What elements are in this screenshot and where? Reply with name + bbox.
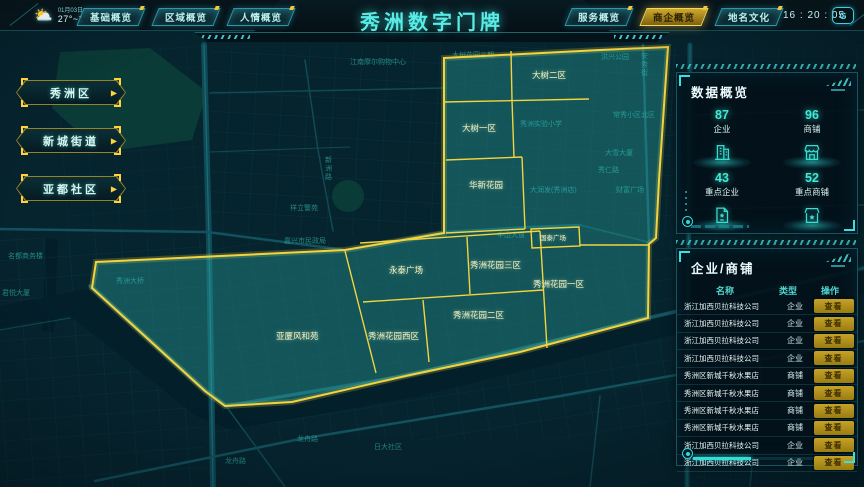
stat-card-3: 52重点商铺: [767, 171, 857, 234]
chevron-right-icon: ▶: [111, 184, 117, 193]
company-type: 企业: [780, 301, 810, 312]
title-backplate: [252, 0, 612, 34]
corner-mark: [114, 148, 121, 155]
company-name: 浙江加西贝拉科技公司: [677, 318, 780, 329]
corner-mark: [21, 100, 28, 107]
action-cell: 查看: [810, 369, 857, 383]
map-base-label: 君悦大厦: [2, 288, 30, 297]
table-row: 浙江加西贝拉科技公司企业查看: [677, 315, 857, 332]
stat-label: 商铺: [767, 123, 857, 135]
stat-label: 重点企业: [677, 186, 767, 198]
company-name: 秀洲区新城千秋水果店: [677, 388, 780, 399]
map-region-label: 大树二区: [532, 70, 567, 80]
view-button[interactable]: 查看: [814, 351, 854, 365]
corner-mark: [114, 196, 121, 203]
company-type: 企业: [780, 335, 810, 346]
map-base-label: 名都商务楼: [8, 251, 43, 260]
company-name: 秀洲区新城千秋水果店: [677, 405, 780, 416]
company-name: 浙江加西贝拉科技公司: [677, 301, 780, 312]
map-region-label: 秀洲花园西区: [368, 331, 420, 341]
stats-grid: 87企业96商铺43重点企业52重点商铺: [677, 106, 857, 234]
hatch-decor: [614, 35, 668, 39]
stat-label: 重点商铺: [767, 186, 857, 198]
stat-label: 企业: [677, 123, 767, 135]
tab-label: 人情概览: [240, 10, 282, 24]
corner-mark: [21, 148, 28, 155]
company-name: 浙江加西贝拉科技公司: [677, 353, 780, 364]
tab-label: 区域概览: [165, 10, 207, 24]
map-region-label: 秀洲花园一区: [533, 279, 585, 289]
target-icon: [682, 448, 693, 459]
chevron-right-icon: ▶: [111, 136, 117, 145]
table-row: 浙江加西贝拉科技公司企业查看: [677, 350, 857, 367]
action-cell: 查看: [810, 438, 857, 452]
action-cell: 查看: [810, 404, 857, 418]
panel-title: 企业/商铺: [677, 249, 857, 282]
map-region-label: 秀洲花园二区: [453, 310, 505, 320]
map-base-label: 龙舟路: [297, 434, 318, 443]
tab-label: 地名文化: [728, 10, 770, 24]
button-label: 秀洲区: [16, 80, 126, 105]
company-type: 企业: [780, 440, 810, 451]
company-name: 浙江加西贝拉科技公司: [677, 335, 780, 346]
header-lower-bar: [182, 32, 682, 42]
corner-mark: [114, 100, 121, 107]
map-base-label: 祥立警苑: [290, 203, 318, 212]
tab-people-overview[interactable]: 人情概览: [230, 8, 292, 26]
table-row: 秀洲区新城千秋水果店商铺查看: [677, 402, 857, 419]
column-header-name: 名称: [677, 284, 773, 297]
tab-region-overview[interactable]: 区域概览: [155, 8, 217, 26]
stat-value: 96: [767, 108, 857, 122]
stat-card-2: 43重点企业: [677, 171, 767, 234]
view-button[interactable]: 查看: [814, 386, 854, 400]
nav-xincheng-street[interactable]: 新城街道▶: [16, 128, 126, 153]
panel-top-hatch: [676, 64, 856, 69]
table-row: 秀洲区新城千秋水果店商铺查看: [677, 368, 857, 385]
company-type: 企业: [780, 353, 810, 364]
table-row: 浙江加西贝拉科技公司企业查看: [677, 437, 857, 454]
company-type: 商铺: [780, 422, 810, 433]
action-cell: 查看: [810, 351, 857, 365]
table-header: 名称类型操作: [677, 282, 857, 298]
view-button[interactable]: 查看: [814, 421, 854, 435]
company-name: 秀洲区新城千秋水果店: [677, 370, 780, 381]
action-cell: 查看: [810, 299, 857, 313]
stat-card-0: 87企业: [677, 108, 767, 171]
corner-mark: [21, 78, 28, 85]
corner-mark: [21, 126, 28, 133]
fullscreen-icon: G: [839, 11, 846, 21]
view-button[interactable]: 查看: [814, 438, 854, 452]
horizontal-scrollbar[interactable]: [693, 457, 813, 460]
company-type: 商铺: [780, 405, 810, 416]
map-region-label: 大树一区: [462, 123, 497, 133]
key-shop-icon: [767, 200, 857, 226]
company-name: 秀洲区新城千秋水果店: [677, 422, 780, 433]
map-base-label: 龙舟路: [225, 456, 246, 465]
table-body: 浙江加西贝拉科技公司企业查看浙江加西贝拉科技公司企业查看浙江加西贝拉科技公司企业…: [677, 298, 857, 472]
action-cell: 查看: [810, 421, 857, 435]
table-row: 秀洲区新城千秋水果店商铺查看: [677, 385, 857, 402]
tab-service-overview[interactable]: 服务概览: [568, 8, 630, 26]
scrollbar-thumb[interactable]: [693, 457, 751, 460]
corner-mark: [21, 196, 28, 203]
map-region-label: 华新花园: [469, 180, 503, 190]
map-region-label: 国泰广场: [540, 233, 567, 242]
corner-decor: [844, 452, 855, 463]
cloud-sun-icon: ⛅: [34, 6, 53, 24]
view-button[interactable]: 查看: [814, 369, 854, 383]
company-type: 企业: [780, 318, 810, 329]
nav-xiuzhou-district[interactable]: 秀洲区▶: [16, 80, 126, 105]
tabs-left: 基础概览区域概览人情概览: [80, 8, 305, 26]
nav-yadu-community[interactable]: 亚都社区▶: [16, 176, 126, 201]
action-cell: 查看: [810, 334, 857, 348]
column-header-action: 操作: [803, 284, 857, 297]
tab-label: 商企概览: [653, 10, 695, 24]
stat-value: 52: [767, 171, 857, 185]
company-name: 浙江加西贝拉科技公司: [677, 440, 780, 451]
corner-mark: [114, 126, 121, 133]
view-button[interactable]: 查看: [814, 334, 854, 348]
corner-mark: [114, 78, 121, 85]
panel-top-hatch: [676, 240, 856, 245]
map-base-label: 江南摩尔购物中心: [350, 57, 406, 66]
map-base-label: 嘉兴市民政局: [284, 236, 326, 245]
shop-icon: [767, 137, 857, 163]
tab-business-overview[interactable]: 商企概览: [643, 8, 705, 26]
table-row: 浙江加西贝拉科技公司企业查看: [677, 298, 857, 315]
map-region-label: 亚厦风和苑: [276, 331, 319, 341]
map-base-label: 日大社区: [374, 442, 402, 451]
action-cell: 查看: [810, 317, 857, 331]
hatch-decor: [196, 35, 250, 39]
key-enterprise-icon: [677, 200, 767, 226]
tab-placename-culture[interactable]: 地名文化: [718, 8, 780, 26]
corner-mark: [114, 174, 121, 181]
data-overview-panel: 数据概览 87企业96商铺43重点企业52重点商铺: [676, 72, 858, 234]
button-label: 新城街道: [16, 128, 126, 153]
view-button[interactable]: 查看: [814, 299, 854, 313]
tab-label: 服务概览: [578, 10, 620, 24]
stat-value: 43: [677, 171, 767, 185]
tab-label: 基础概览: [90, 10, 132, 24]
company-type: 商铺: [780, 388, 810, 399]
fullscreen-button[interactable]: G: [832, 7, 854, 24]
table-row: 浙江加西贝拉科技公司企业查看: [677, 333, 857, 350]
tabs-right: 服务概览商企概览地名文化: [568, 8, 793, 26]
view-button[interactable]: 查看: [814, 317, 854, 331]
company-type: 商铺: [780, 370, 810, 381]
stat-card-1: 96商铺: [767, 108, 857, 171]
app-root: 江南摩尔购物中心大树花园三期洪兴公园安秀街常秀小区北区秀洲实验小学大雪大厦秀仁路…: [0, 0, 864, 487]
corner-mark: [21, 174, 28, 181]
column-header-type: 类型: [773, 284, 803, 297]
tab-basic-overview[interactable]: 基础概览: [80, 8, 142, 26]
business-panel: 企业/商铺 名称类型操作 浙江加西贝拉科技公司企业查看浙江加西贝拉科技公司企业查…: [676, 248, 858, 466]
building-icon: [677, 137, 767, 163]
stat-value: 87: [677, 108, 767, 122]
action-cell: 查看: [810, 386, 857, 400]
panel-title: 数据概览: [677, 73, 857, 106]
chevron-right-icon: ▶: [111, 88, 117, 97]
table-row: 秀洲区新城千秋水果店商铺查看: [677, 420, 857, 437]
map-region-label: 永泰广场: [389, 265, 423, 275]
map-region-label: 秀洲花园三区: [470, 260, 522, 270]
button-label: 亚都社区: [16, 176, 126, 201]
map-base-label: 新洲路: [325, 155, 332, 181]
top-bar: ⛅ 01月03日 27°~19° 基础概览区域概览人情概览 秀洲数字门牌 服务概…: [0, 0, 864, 46]
view-button[interactable]: 查看: [814, 404, 854, 418]
